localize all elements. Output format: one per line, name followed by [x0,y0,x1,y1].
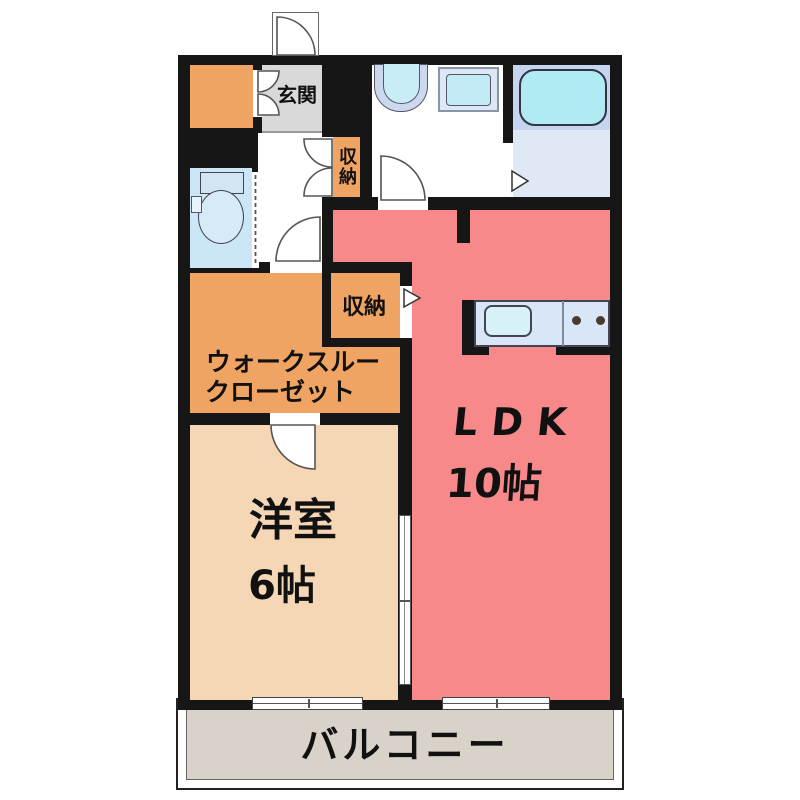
shoe-cabinet-doorway [253,70,262,117]
bathtub-icon [519,69,607,126]
closet-label-line2: クローゼット [205,380,355,405]
room-ldk [412,210,610,700]
storage-2-doorway [400,286,412,338]
kitchen-counter-divider [562,301,564,346]
storage-2-label: 収納 [342,297,386,319]
storage-1-doorway [322,137,333,197]
toilet-doorway [252,172,259,268]
room-ldk-nook [333,210,412,262]
bedroom-size-label: 6帖 [248,566,316,606]
sliding-door [399,515,411,685]
closet-inner-wall-v [322,273,331,347]
storage-1-label: 収納 [337,147,355,187]
ldk-window [442,697,550,710]
stove-burner-icon [596,316,605,325]
bedroom-label: 洋室 [249,499,337,543]
closet-door-sill [270,262,322,273]
bathroom-doorway [503,143,513,197]
genkan-label: 玄関 [277,85,317,105]
washroom-wall-stub [457,210,470,243]
bedroom-window [252,697,363,710]
closet-inner-wall-h [322,338,400,347]
toilet-bowl-icon [198,190,244,244]
ldk-label: LDK [451,403,582,441]
room-meter-box [190,65,253,128]
stove-burner-icon [572,316,581,325]
room-hallway [258,133,322,262]
toilet-remote-icon [191,196,202,213]
washroom-door-sill [378,197,428,210]
balcony-label: バルコニー [300,726,509,764]
closet-label-line1: ウォークスルー [206,350,380,375]
room-bathroom-floor [513,130,610,197]
kitchen-sink-icon [484,305,532,337]
washing-machine-inner [446,74,491,106]
entrance-door-frame [272,12,319,56]
ldk-size-label: 10帖 [445,464,543,504]
bedroom-door-sill [270,413,320,425]
vanity-sink-bowl [383,64,420,104]
floor-plan: 玄関 収納 収納 ウォークスルー クローゼット 洋室 6帖 LDK 10帖 バル… [0,0,800,800]
